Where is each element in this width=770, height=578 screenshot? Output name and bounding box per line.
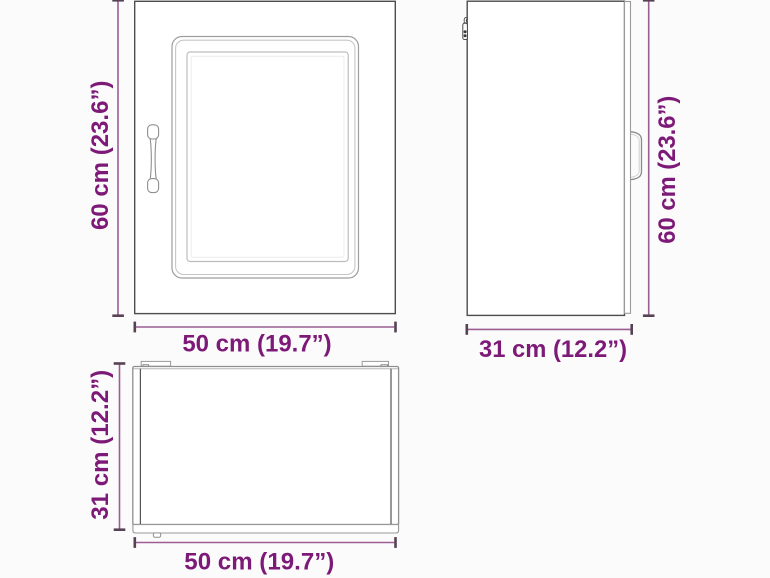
svg-text:31 cm (12.2”): 31 cm (12.2”): [87, 370, 114, 520]
svg-text:50 cm (19.7”): 50 cm (19.7”): [182, 330, 331, 357]
svg-text:60 cm (23.6”): 60 cm (23.6”): [654, 96, 681, 244]
svg-text:50 cm (19.7”): 50 cm (19.7”): [184, 548, 334, 575]
svg-text:60 cm (23.6”): 60 cm (23.6”): [87, 81, 114, 231]
svg-text:31 cm (12.2”): 31 cm (12.2”): [479, 336, 627, 363]
